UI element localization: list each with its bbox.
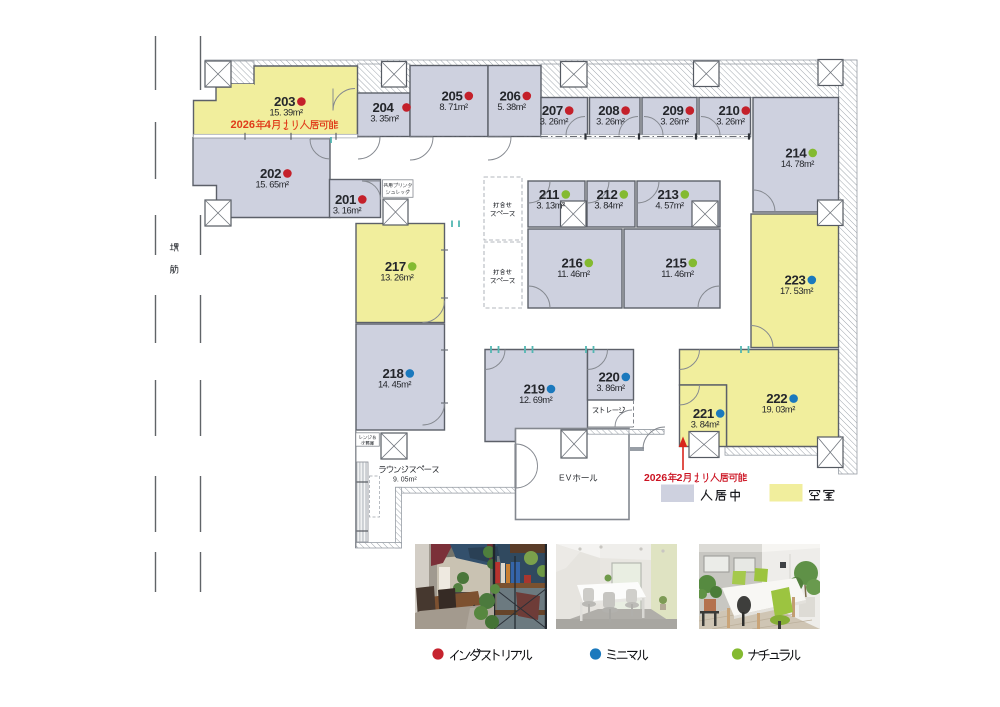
svg-text:15. 65m²: 15. 65m² [256, 179, 289, 189]
svg-text:4. 57m²: 4. 57m² [655, 200, 684, 210]
svg-text:15. 39m²: 15. 39m² [270, 108, 303, 118]
svg-text:3. 16m²: 3. 16m² [333, 205, 362, 215]
svg-text:3. 84m²: 3. 84m² [691, 420, 720, 430]
svg-text:14. 78m²: 14. 78m² [781, 159, 814, 169]
svg-text:5. 38m²: 5. 38m² [497, 102, 526, 112]
svg-text:3. 26m²: 3. 26m² [596, 117, 625, 127]
svg-text:EV: EV [559, 473, 573, 483]
svg-text:3. 26m²: 3. 26m² [540, 117, 569, 127]
svg-text:3. 26m²: 3. 26m² [716, 117, 745, 127]
svg-text:2: 2 [677, 473, 683, 484]
svg-text:13. 26m²: 13. 26m² [380, 272, 413, 282]
svg-text:14. 45m²: 14. 45m² [378, 379, 411, 389]
svg-text:3. 13m²: 3. 13m² [536, 200, 565, 210]
svg-text:4: 4 [265, 119, 272, 131]
svg-text:3. 86m²: 3. 86m² [596, 383, 625, 393]
svg-text:19. 03m²: 19. 03m² [762, 405, 795, 415]
svg-text:3. 26m²: 3. 26m² [660, 117, 689, 127]
svg-text:3. 35m²: 3. 35m² [370, 113, 399, 123]
svg-text:3. 84m²: 3. 84m² [594, 200, 623, 210]
svg-text:2026: 2026 [231, 119, 255, 131]
svg-text:9. 05m²: 9. 05m² [393, 477, 417, 484]
svg-text:2026: 2026 [644, 473, 667, 484]
svg-text:11. 46m²: 11. 46m² [661, 269, 694, 279]
svg-text:8. 71m²: 8. 71m² [439, 102, 468, 112]
svg-text:17. 53m²: 17. 53m² [780, 286, 813, 296]
svg-text:12. 69m²: 12. 69m² [519, 395, 552, 405]
svg-text:11. 46m²: 11. 46m² [557, 269, 590, 279]
